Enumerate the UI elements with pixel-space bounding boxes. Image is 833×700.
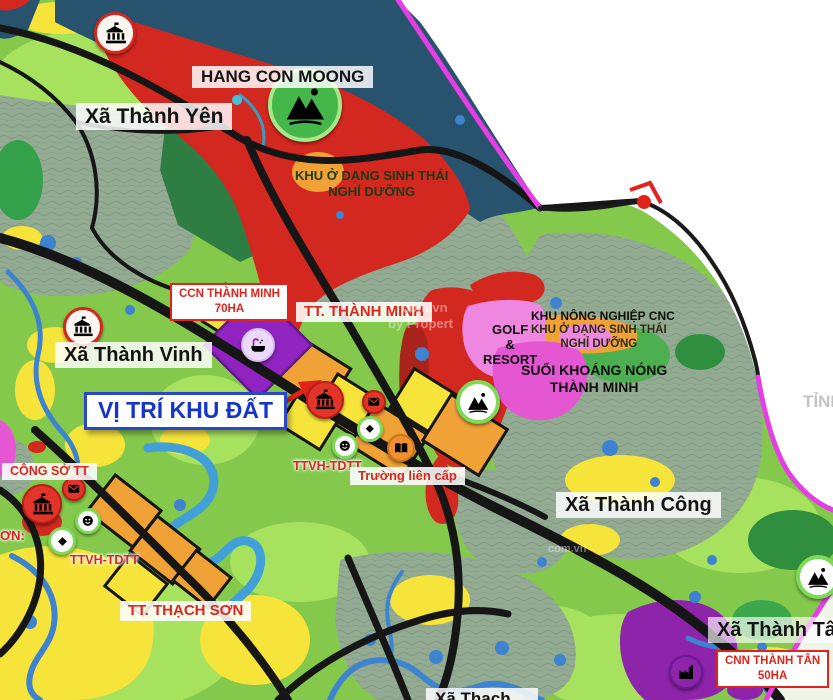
envelope-icon (62, 477, 86, 501)
watermark: com.vn by Propert (388, 300, 453, 331)
label-hang-con-moong: HANG CON MOONG (192, 66, 373, 88)
theater-face-icon (75, 508, 101, 534)
label-tt-thach-son: TT. THẠCH SƠN (120, 601, 251, 621)
label-cong-so-tt: CÔNG SỞ TT (2, 463, 97, 480)
government-building-icon (22, 484, 62, 524)
diamond-icon (48, 527, 76, 555)
government-building-icon (94, 12, 136, 54)
mountain-icon (796, 555, 833, 599)
label-tinh-partial: TỈNH (803, 392, 833, 412)
envelope-icon (362, 390, 386, 414)
watermark: com.vn (548, 543, 587, 556)
hot-spring-bath-icon (241, 328, 275, 362)
label-suoi-khoang-nong: SUỐI KHOÁNG NÓNG THÀNH MINH (521, 362, 667, 396)
label-ttvh-tdtt-left: TTVH-TDTT (70, 553, 139, 568)
diamond-icon (357, 416, 383, 442)
mountain-icon (456, 380, 500, 424)
label-xa-thanh-vinh: Xã Thành Vinh (55, 342, 212, 368)
label-xa-thanh-tan: Xã Thành Tân (708, 617, 833, 643)
book-icon (387, 434, 415, 462)
label-xa-thanh-cong: Xã Thành Công (556, 492, 721, 518)
label-son-partial: ƠN: (0, 528, 25, 544)
label-khu-sinh-thai-east: KHU Ở DẠNG SINH THÁI NGHỈ DƯỠNG (531, 324, 667, 352)
government-building-icon (306, 381, 344, 419)
label-cnn-thanh-tan: CNN THÀNH TÂN 50HA (716, 650, 829, 688)
government-building-icon (63, 307, 103, 347)
planning-map: HANG CON MOONG Xã Thành Yên KHU Ở DẠNG S… (0, 0, 833, 700)
label-khu-nong-nghiep-cnc: KHU NÔNG NGHIỆP CNC (531, 309, 675, 323)
label-ccn-thanh-minh: CCN THÀNH MINH 70HA (170, 283, 289, 321)
label-khu-sinh-thai-north: KHU Ở DẠNG SINH THÁI NGHỈ DƯỠNG (295, 168, 448, 199)
theater-face-icon (332, 433, 358, 459)
label-vi-tri-khu-dat: VỊ TRÍ KHU ĐẤT (84, 392, 287, 430)
label-truong-lien-cap: Trường liên cấp (350, 467, 465, 485)
label-xa-thanh-yen: Xã Thành Yên (76, 103, 232, 130)
factory-icon (669, 655, 703, 689)
label-xa-thach-bottom: Xã Thạch ... (426, 688, 538, 700)
